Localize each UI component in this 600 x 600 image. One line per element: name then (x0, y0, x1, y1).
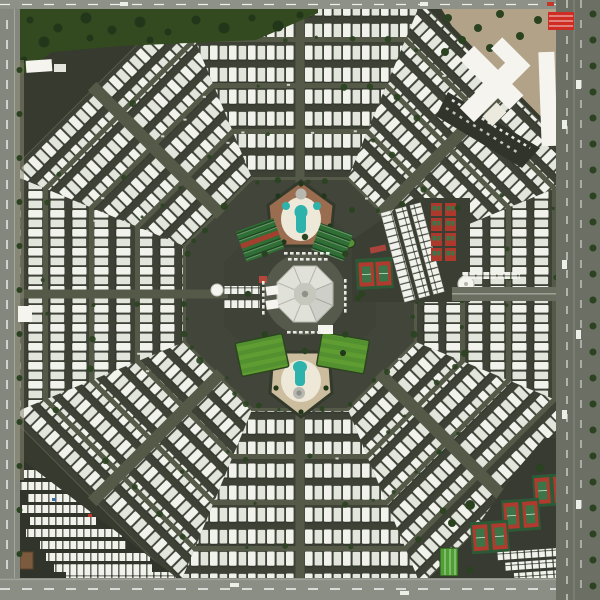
tree-icon (441, 48, 449, 56)
tree-icon (389, 152, 395, 158)
parked-car (320, 252, 324, 255)
tree-icon (255, 181, 259, 185)
court-green (437, 236, 441, 241)
tree-icon (359, 291, 365, 297)
parked-car (311, 331, 315, 334)
round-building (296, 189, 307, 200)
aerial-photo (0, 0, 600, 600)
car-mark (88, 514, 92, 517)
tree-icon (392, 490, 396, 494)
tree-icon (129, 100, 136, 107)
tree-icon (376, 208, 380, 212)
tree-icon (165, 29, 172, 36)
tree-icon (385, 36, 392, 43)
plaza-building (538, 52, 557, 147)
tree-icon (403, 414, 406, 417)
tree-icon (27, 17, 34, 24)
car-mark (354, 130, 357, 132)
parked-car (300, 258, 304, 261)
tree-icon (590, 11, 597, 18)
court-green (447, 251, 451, 256)
tree-icon (232, 391, 237, 396)
court-green (433, 236, 437, 241)
tree-icon (17, 463, 23, 469)
tree-icon (243, 401, 249, 407)
tree-icon (87, 35, 94, 42)
tree-icon (448, 519, 456, 527)
tree-icon (321, 193, 326, 198)
tree-icon (245, 546, 248, 549)
car-mark (120, 2, 128, 6)
small-building (54, 64, 66, 72)
tree-icon (178, 186, 182, 190)
court-green (451, 206, 455, 211)
tree-icon (590, 297, 597, 304)
tree-icon (444, 14, 452, 22)
road-median (452, 293, 562, 295)
car-mark (562, 410, 567, 419)
parked-car (290, 252, 294, 255)
tree-icon (590, 375, 597, 382)
tree-icon (298, 409, 303, 414)
tree-icon (17, 155, 23, 161)
satellite-image (0, 0, 600, 600)
tree-icon (17, 507, 23, 513)
spa-pool (313, 202, 321, 210)
tree-icon (340, 84, 347, 91)
tree-icon (256, 403, 262, 409)
tree-icon (590, 323, 597, 330)
car-mark (576, 500, 581, 509)
tree-icon (196, 357, 203, 364)
car-mark (311, 132, 314, 134)
tree-icon (17, 375, 23, 381)
parked-car (262, 311, 265, 315)
parked-car (296, 252, 300, 255)
tree-icon (132, 484, 138, 490)
tree-icon (57, 172, 62, 177)
tree-icon (590, 193, 597, 200)
tree-icon (17, 287, 23, 293)
tank-vent (464, 282, 468, 286)
parked-car (287, 331, 291, 334)
road-shoulder (15, 60, 24, 480)
tree-icon (474, 24, 482, 32)
rv-storage-row (54, 564, 152, 572)
tree-icon (147, 37, 154, 44)
parked-car (294, 258, 298, 261)
tree-icon (384, 369, 390, 375)
parked-car (299, 331, 303, 334)
car-mark (101, 197, 104, 199)
car-mark (241, 131, 244, 133)
tree-icon (372, 378, 376, 382)
tree-icon (590, 583, 597, 590)
tree-icon (249, 15, 256, 22)
tree-icon (141, 215, 144, 218)
southeast-lawn (316, 332, 369, 374)
tree-icon (102, 457, 109, 464)
parked-car (262, 287, 265, 291)
tree-icon (590, 63, 597, 70)
tree-icon (436, 449, 441, 454)
tree-icon (348, 545, 353, 550)
tree-icon (186, 317, 189, 320)
tree-icon (399, 201, 405, 207)
tree-icon (17, 419, 23, 425)
tree-icon (590, 141, 597, 148)
tree-icon (590, 401, 597, 408)
rv-row (224, 300, 260, 308)
tree-icon (467, 567, 474, 574)
tree-icon (266, 132, 270, 136)
court-green (451, 221, 455, 226)
pool-water (296, 212, 306, 233)
tree-icon (81, 13, 92, 24)
tree-icon (590, 219, 597, 226)
tree-icon (315, 36, 318, 39)
parked-car (262, 281, 265, 285)
car-mark (203, 96, 206, 98)
parked-car (344, 297, 347, 301)
tree-icon (322, 178, 328, 184)
tree-icon (415, 470, 418, 473)
tree-icon (372, 499, 375, 502)
car-mark (365, 198, 368, 200)
tree-icon (226, 450, 229, 453)
car-mark (400, 591, 409, 595)
tree-icon (181, 301, 187, 307)
tree-icon (516, 32, 524, 40)
tree-icon (191, 238, 196, 243)
tree-icon (184, 251, 190, 257)
court-green (433, 221, 437, 226)
court-green (447, 206, 451, 211)
tree-icon (44, 200, 50, 206)
tree-icon (414, 48, 418, 52)
tree-icon (590, 245, 597, 252)
parked-car (302, 252, 306, 255)
tree-icon (319, 406, 324, 411)
parked-car (284, 252, 288, 255)
tree-icon (394, 94, 401, 101)
tree-icon (590, 427, 597, 434)
water-tanks (211, 284, 223, 296)
tree-icon (53, 407, 59, 413)
court-green (437, 251, 441, 256)
parked-car (288, 258, 292, 261)
car-mark (226, 142, 229, 144)
tree-icon (261, 250, 267, 256)
rv-row (224, 286, 260, 294)
tree-icon (505, 246, 510, 251)
tree-icon (297, 12, 304, 19)
rv-row (462, 272, 520, 279)
court-green (433, 251, 437, 256)
tree-icon (45, 312, 49, 316)
tree-icon (275, 177, 281, 183)
tree-icon (275, 193, 280, 198)
parked-car (308, 252, 312, 255)
court-green (451, 251, 455, 256)
gatehouse-building (18, 306, 32, 322)
parked-car (317, 331, 321, 334)
rv-storage-row (30, 517, 96, 525)
tree-icon (221, 203, 228, 210)
tree-icon (386, 430, 390, 434)
tree-icon (342, 331, 348, 337)
parked-car (293, 331, 297, 334)
car-mark (576, 80, 581, 89)
parked-car (262, 299, 265, 303)
tree-icon (108, 26, 117, 35)
small-building (26, 59, 53, 73)
car-mark (183, 119, 186, 121)
tree-icon (505, 303, 508, 306)
tree-icon (349, 207, 355, 213)
car-mark (547, 2, 554, 6)
tree-icon (534, 16, 542, 24)
tree-icon (465, 500, 475, 510)
tree-icon (307, 453, 312, 458)
tree-icon (590, 479, 597, 486)
tree-icon (302, 348, 308, 354)
parked-car (344, 303, 347, 307)
parked-car (306, 258, 310, 261)
tree-icon (298, 181, 303, 186)
tree-icon (253, 502, 256, 505)
tree-icon (87, 365, 94, 372)
court-green (433, 206, 437, 211)
tree-icon (552, 207, 555, 210)
tree-icon (348, 402, 353, 407)
court-green (437, 206, 441, 211)
tree-icon (590, 167, 597, 174)
tree-icon (434, 380, 440, 386)
tree-icon (121, 175, 126, 180)
parked-car (318, 258, 322, 261)
parked-car (344, 309, 347, 313)
tree-icon (156, 511, 163, 518)
parked-car (326, 252, 330, 255)
tree-icon (39, 37, 50, 48)
tree-icon (590, 37, 597, 44)
car-mark (562, 120, 567, 129)
tree-icon (590, 115, 597, 122)
tree-icon (536, 464, 544, 472)
bocce-courts (440, 548, 458, 576)
parked-car (312, 258, 316, 261)
tree-icon (273, 385, 278, 390)
car-mark (230, 583, 239, 587)
pool-water (295, 367, 305, 386)
tree-icon (590, 531, 597, 538)
east-tennis-courts (355, 257, 394, 290)
car-mark (146, 370, 149, 372)
parked-car (344, 291, 347, 295)
rv-storage-row (46, 553, 150, 561)
tree-icon (134, 301, 140, 307)
car-mark (420, 2, 428, 6)
parked-car (262, 293, 265, 297)
tree-icon (17, 199, 23, 205)
parked-car (344, 279, 347, 283)
tree-icon (17, 67, 23, 73)
small-building (266, 285, 279, 296)
parked-car (262, 305, 265, 309)
tree-icon (219, 23, 230, 34)
tree-icon (590, 349, 597, 356)
tree-icon (323, 385, 328, 390)
tree-icon (590, 89, 597, 96)
tree-icon (160, 203, 164, 207)
tree-icon (257, 84, 260, 87)
tree-icon (245, 291, 251, 297)
tree-icon (456, 432, 459, 435)
tree-icon (350, 36, 356, 42)
tree-icon (460, 325, 464, 329)
tree-icon (277, 408, 280, 411)
tree-icon (190, 346, 194, 350)
tree-icon (367, 83, 373, 89)
car-mark (335, 457, 338, 459)
tree-icon (415, 536, 421, 542)
tree-icon (192, 16, 201, 25)
tree-icon (261, 331, 267, 337)
court-green (447, 221, 451, 226)
tree-icon (371, 138, 375, 142)
car-mark (52, 498, 56, 501)
tree-icon (89, 336, 96, 343)
tree-icon (180, 470, 184, 474)
tree-icon (413, 115, 420, 122)
tree-icon (420, 186, 426, 192)
tree-icon (499, 193, 503, 197)
tree-icon (243, 457, 248, 462)
round-spa-center (296, 390, 301, 395)
car-mark (287, 84, 290, 86)
car-mark (398, 358, 401, 360)
tree-icon (410, 315, 414, 319)
tree-icon (273, 21, 284, 32)
rv-storage-row (26, 529, 122, 537)
tree-icon (283, 38, 288, 43)
tree-icon (496, 10, 504, 18)
tree-icon (41, 278, 45, 282)
tree-icon (226, 376, 229, 379)
tree-icon (590, 557, 597, 564)
car-mark (562, 260, 567, 269)
tree-icon (54, 24, 63, 33)
court-green (447, 236, 451, 241)
roof-peak (302, 291, 308, 297)
car-mark (93, 220, 96, 222)
tree-icon (181, 331, 187, 337)
tree-icon (440, 507, 447, 514)
court-green (451, 236, 455, 241)
tree-icon (411, 331, 418, 338)
tree-icon (17, 111, 23, 117)
tree-icon (17, 243, 23, 249)
parked-car (305, 331, 309, 334)
tree-icon (342, 250, 348, 256)
tree-icon (92, 303, 96, 307)
tree-icon (590, 271, 597, 278)
tree-icon (17, 331, 23, 337)
tree-icon (202, 228, 208, 234)
car-mark (576, 330, 581, 339)
tree-icon (342, 502, 348, 508)
small-building (266, 299, 279, 310)
tree-icon (458, 36, 466, 44)
court-green (437, 221, 441, 226)
tree-icon (590, 453, 597, 460)
tree-icon (461, 350, 468, 357)
tree-icon (455, 205, 461, 211)
red-roof-building (548, 12, 574, 30)
tree-icon (135, 17, 146, 28)
tree-icon (17, 551, 23, 557)
car-mark (137, 353, 140, 355)
car-mark (161, 135, 164, 137)
parked-car (324, 258, 328, 261)
tree-icon (302, 234, 308, 240)
tree-icon (452, 364, 458, 370)
spa-pool (282, 202, 290, 210)
rv-storage-row (40, 541, 126, 549)
car-mark (442, 75, 445, 77)
tree-icon (590, 505, 597, 512)
tree-icon (180, 534, 186, 540)
tree-icon (207, 155, 211, 159)
tree-icon (282, 543, 288, 549)
parked-car (314, 252, 318, 255)
parked-car (344, 285, 347, 289)
southeast-tennis-courts (470, 520, 510, 555)
